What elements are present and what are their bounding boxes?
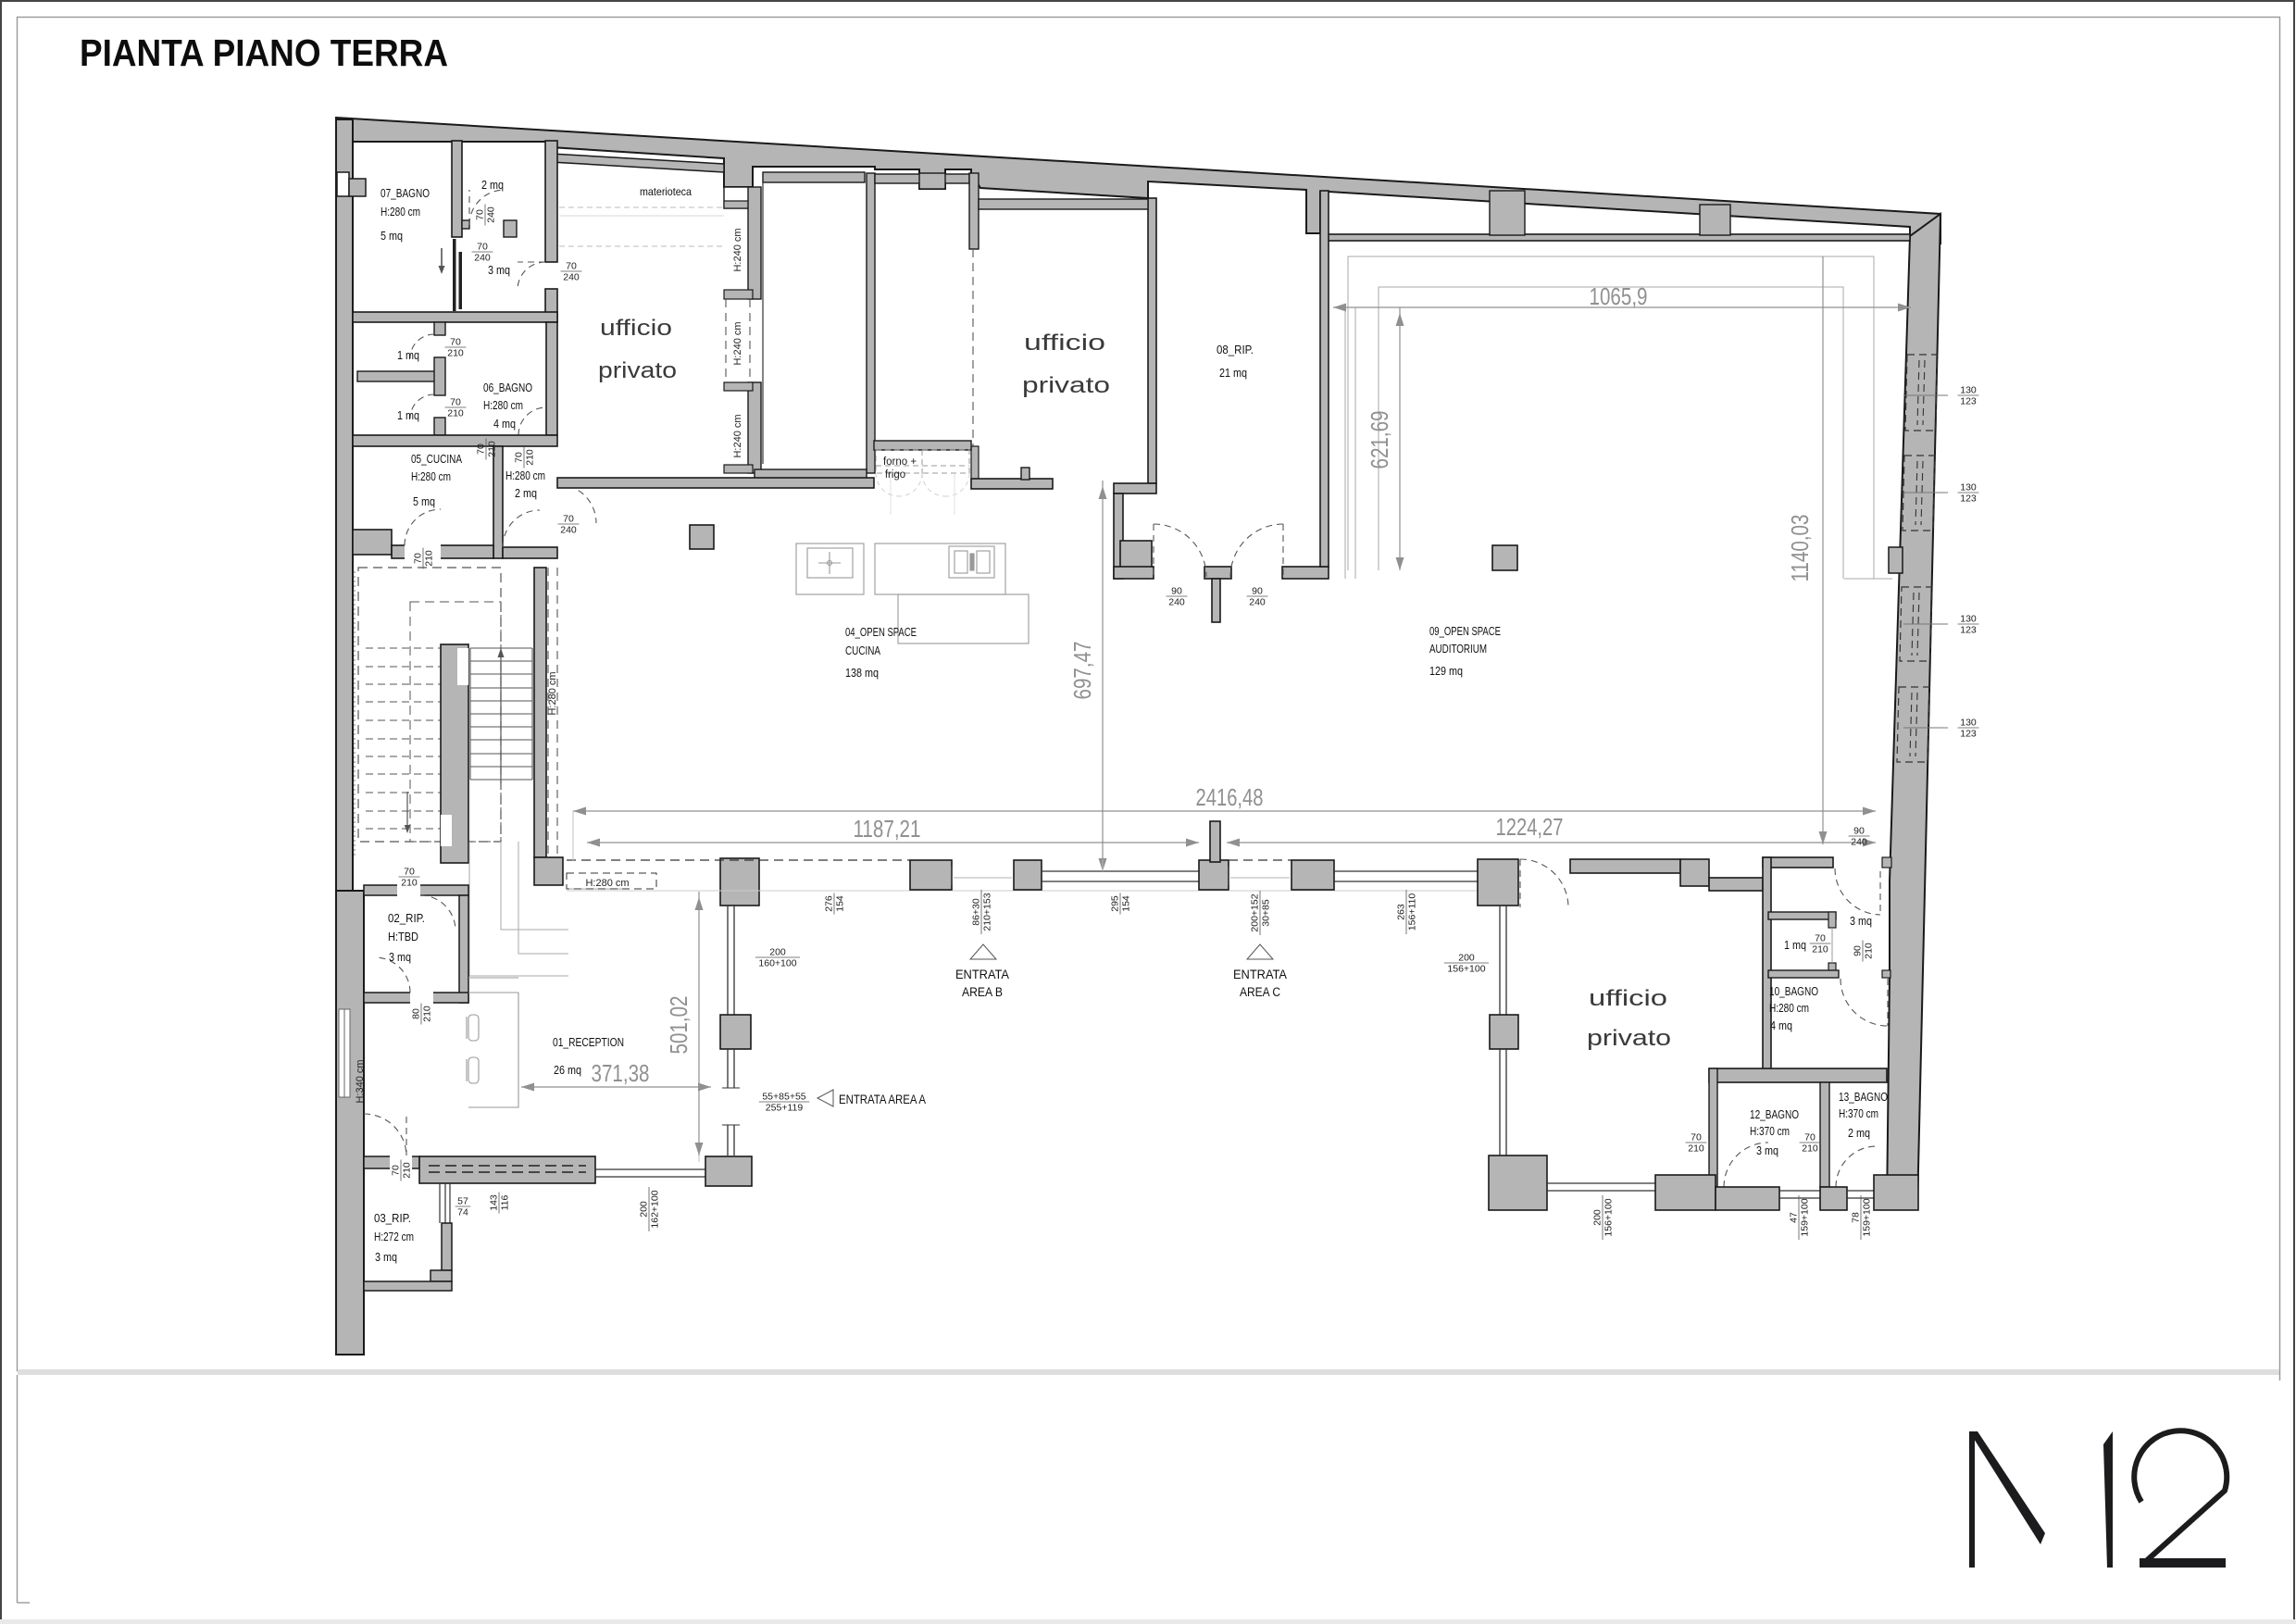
svg-text:240: 240 bbox=[474, 253, 491, 264]
svg-text:156+110: 156+110 bbox=[1407, 893, 1418, 931]
svg-text:255+119: 255+119 bbox=[766, 1103, 804, 1114]
svg-text:09_OPEN SPACE: 09_OPEN SPACE bbox=[1429, 624, 1501, 638]
svg-text:2 mq: 2 mq bbox=[515, 486, 537, 500]
svg-text:210: 210 bbox=[1864, 943, 1875, 959]
svg-text:240: 240 bbox=[563, 272, 580, 283]
svg-text:ufficio: ufficio bbox=[600, 316, 672, 341]
svg-text:70: 70 bbox=[476, 443, 487, 455]
svg-text:ufficio: ufficio bbox=[1589, 986, 1667, 1011]
svg-text:4 mq: 4 mq bbox=[1770, 1018, 1792, 1032]
svg-text:H:280 cm: H:280 cm bbox=[483, 398, 523, 412]
svg-text:697,47: 697,47 bbox=[1068, 642, 1096, 700]
svg-text:PIANTA PIANO TERRA: PIANTA PIANO TERRA bbox=[80, 31, 448, 74]
svg-text:materioteca: materioteca bbox=[640, 185, 692, 198]
svg-text:H:240 cm: H:240 cm bbox=[732, 228, 743, 271]
svg-text:240: 240 bbox=[1851, 837, 1867, 848]
svg-text:130: 130 bbox=[1960, 482, 1977, 493]
svg-text:123: 123 bbox=[1960, 729, 1977, 740]
svg-text:AREA B: AREA B bbox=[962, 985, 1003, 1000]
svg-text:70: 70 bbox=[450, 337, 461, 348]
svg-text:08_RIP.: 08_RIP. bbox=[1217, 343, 1254, 356]
svg-text:CUCINA: CUCINA bbox=[845, 643, 880, 657]
svg-text:159+100: 159+100 bbox=[1800, 1198, 1811, 1236]
svg-text:privato: privato bbox=[1022, 373, 1110, 398]
svg-text:240: 240 bbox=[560, 525, 577, 536]
svg-text:210: 210 bbox=[422, 1006, 433, 1022]
svg-text:30+85: 30+85 bbox=[1261, 899, 1272, 927]
svg-text:H:280 cm: H:280 cm bbox=[505, 468, 545, 482]
svg-text:210: 210 bbox=[1812, 944, 1828, 956]
svg-text:1 mq: 1 mq bbox=[397, 348, 419, 362]
svg-text:210: 210 bbox=[401, 878, 418, 889]
svg-text:156+100: 156+100 bbox=[1603, 1198, 1615, 1236]
svg-text:13_BAGNO: 13_BAGNO bbox=[1839, 1090, 1888, 1104]
svg-text:2 mq: 2 mq bbox=[1848, 1126, 1870, 1140]
svg-text:ENTRATA AREA A: ENTRATA AREA A bbox=[839, 1093, 926, 1107]
svg-text:H:280 cm: H:280 cm bbox=[1769, 1001, 1809, 1015]
svg-text:210: 210 bbox=[1688, 1143, 1704, 1155]
svg-text:04_OPEN SPACE: 04_OPEN SPACE bbox=[845, 625, 917, 639]
svg-text:78: 78 bbox=[1851, 1212, 1862, 1223]
svg-text:5 mq: 5 mq bbox=[381, 229, 403, 243]
svg-text:57: 57 bbox=[457, 1196, 468, 1207]
svg-text:240: 240 bbox=[486, 206, 497, 223]
svg-text:263: 263 bbox=[1396, 904, 1407, 920]
svg-text:12_BAGNO: 12_BAGNO bbox=[1750, 1107, 1799, 1121]
svg-text:160+100: 160+100 bbox=[758, 958, 796, 969]
svg-text:80: 80 bbox=[411, 1008, 422, 1019]
svg-text:210: 210 bbox=[1802, 1143, 1818, 1155]
svg-text:H:340 cm: H:340 cm bbox=[355, 1059, 366, 1103]
svg-text:ENTRATA: ENTRATA bbox=[1233, 968, 1287, 982]
svg-text:70: 70 bbox=[391, 1165, 402, 1176]
svg-text:200+152: 200+152 bbox=[1250, 893, 1261, 931]
svg-text:90: 90 bbox=[1853, 945, 1864, 956]
svg-text:129 mq: 129 mq bbox=[1429, 664, 1463, 678]
svg-text:AUDITORIUM: AUDITORIUM bbox=[1429, 642, 1487, 656]
svg-text:276: 276 bbox=[824, 895, 835, 912]
svg-text:200: 200 bbox=[1592, 1209, 1603, 1226]
svg-text:210: 210 bbox=[447, 408, 464, 419]
svg-text:47: 47 bbox=[1789, 1212, 1800, 1223]
svg-text:210+153: 210+153 bbox=[982, 893, 993, 931]
svg-text:138 mq: 138 mq bbox=[845, 666, 879, 680]
svg-text:210: 210 bbox=[487, 441, 498, 457]
svg-text:162+100: 162+100 bbox=[650, 1190, 661, 1228]
svg-text:70: 70 bbox=[413, 553, 424, 564]
svg-text:forno +: forno + bbox=[883, 456, 917, 468]
svg-text:123: 123 bbox=[1960, 396, 1977, 407]
svg-text:3 mq: 3 mq bbox=[375, 1250, 397, 1264]
svg-text:371,38: 371,38 bbox=[592, 1059, 650, 1087]
svg-text:210: 210 bbox=[447, 348, 464, 359]
svg-text:5 mq: 5 mq bbox=[413, 494, 435, 508]
svg-text:70: 70 bbox=[450, 397, 461, 408]
svg-text:1 mq: 1 mq bbox=[1784, 938, 1806, 952]
svg-text:H:280 cm: H:280 cm bbox=[411, 469, 451, 483]
svg-text:H:280 cm: H:280 cm bbox=[381, 205, 420, 219]
svg-text:70: 70 bbox=[1804, 1132, 1816, 1143]
svg-text:156+100: 156+100 bbox=[1447, 964, 1485, 975]
svg-text:55+85+55: 55+85+55 bbox=[762, 1092, 805, 1103]
svg-text:frigo: frigo bbox=[885, 469, 905, 481]
svg-text:H:240 cm: H:240 cm bbox=[732, 414, 743, 457]
svg-text:123: 123 bbox=[1960, 493, 1977, 505]
svg-text:ufficio: ufficio bbox=[1024, 331, 1105, 356]
svg-text:privato: privato bbox=[1587, 1026, 1671, 1051]
svg-text:116: 116 bbox=[500, 1194, 511, 1210]
svg-text:06_BAGNO: 06_BAGNO bbox=[483, 381, 532, 394]
svg-text:ENTRATA: ENTRATA bbox=[955, 968, 1009, 982]
svg-text:H:280 cm: H:280 cm bbox=[547, 671, 558, 715]
svg-text:70: 70 bbox=[1815, 933, 1826, 944]
svg-text:1065,9: 1065,9 bbox=[1590, 282, 1648, 310]
svg-text:2416,48: 2416,48 bbox=[1196, 783, 1264, 811]
svg-text:210: 210 bbox=[525, 449, 536, 466]
svg-text:AREA C: AREA C bbox=[1240, 985, 1280, 1000]
svg-text:21 mq: 21 mq bbox=[1219, 366, 1247, 380]
svg-text:295: 295 bbox=[1110, 895, 1121, 912]
svg-text:H:280 cm: H:280 cm bbox=[585, 878, 629, 889]
svg-text:3 mq: 3 mq bbox=[389, 950, 411, 964]
svg-text:154: 154 bbox=[1121, 895, 1132, 912]
svg-text:123: 123 bbox=[1960, 625, 1977, 636]
svg-text:H:240 cm: H:240 cm bbox=[732, 321, 743, 365]
svg-text:1 mq: 1 mq bbox=[397, 408, 419, 422]
svg-text:70: 70 bbox=[475, 209, 486, 220]
svg-text:70: 70 bbox=[404, 867, 415, 878]
svg-text:70: 70 bbox=[566, 261, 577, 272]
svg-text:1224,27: 1224,27 bbox=[1496, 813, 1564, 841]
svg-text:07_BAGNO: 07_BAGNO bbox=[381, 186, 430, 200]
svg-text:240: 240 bbox=[1168, 597, 1185, 608]
svg-text:4 mq: 4 mq bbox=[493, 417, 516, 431]
svg-text:130: 130 bbox=[1960, 385, 1977, 396]
svg-text:1140,03: 1140,03 bbox=[1786, 515, 1814, 582]
svg-text:05_CUCINA: 05_CUCINA bbox=[411, 452, 462, 466]
svg-text:H:370 cm: H:370 cm bbox=[1750, 1124, 1790, 1138]
svg-text:H:TBD: H:TBD bbox=[388, 930, 418, 943]
svg-text:70: 70 bbox=[514, 452, 525, 463]
svg-text:H:370 cm: H:370 cm bbox=[1839, 1106, 1878, 1120]
svg-text:200: 200 bbox=[1458, 953, 1475, 964]
svg-text:02_RIP.: 02_RIP. bbox=[388, 911, 425, 925]
svg-text:01_RECEPTION: 01_RECEPTION bbox=[553, 1035, 624, 1049]
svg-text:159+100: 159+100 bbox=[1862, 1198, 1873, 1236]
svg-text:3 mq: 3 mq bbox=[1850, 914, 1872, 928]
svg-text:90: 90 bbox=[1171, 586, 1182, 597]
svg-text:10_BAGNO: 10_BAGNO bbox=[1769, 984, 1818, 998]
svg-text:70: 70 bbox=[477, 242, 488, 253]
svg-text:501,02: 501,02 bbox=[665, 996, 693, 1055]
svg-text:90: 90 bbox=[1853, 826, 1865, 837]
svg-text:3 mq: 3 mq bbox=[1756, 1143, 1778, 1157]
svg-text:03_RIP.: 03_RIP. bbox=[374, 1211, 411, 1225]
svg-text:90: 90 bbox=[1252, 586, 1263, 597]
svg-text:70: 70 bbox=[1691, 1132, 1702, 1143]
svg-text:70: 70 bbox=[563, 514, 574, 525]
svg-text:1187,21: 1187,21 bbox=[854, 815, 921, 843]
svg-text:3 mq: 3 mq bbox=[488, 263, 510, 277]
svg-text:200: 200 bbox=[639, 1201, 650, 1218]
svg-text:privato: privato bbox=[598, 358, 677, 383]
svg-text:240: 240 bbox=[1249, 597, 1266, 608]
svg-text:210: 210 bbox=[424, 550, 435, 567]
svg-text:H:272 cm: H:272 cm bbox=[374, 1230, 414, 1243]
svg-text:621,69: 621,69 bbox=[1366, 411, 1393, 469]
svg-text:143: 143 bbox=[489, 1194, 500, 1211]
svg-text:2 mq: 2 mq bbox=[481, 178, 504, 192]
svg-text:26 mq: 26 mq bbox=[554, 1063, 581, 1077]
svg-text:130: 130 bbox=[1960, 614, 1977, 625]
svg-text:130: 130 bbox=[1960, 718, 1977, 729]
svg-text:154: 154 bbox=[835, 895, 846, 912]
svg-text:74: 74 bbox=[457, 1207, 468, 1218]
svg-text:210: 210 bbox=[402, 1162, 413, 1179]
svg-text:86+30: 86+30 bbox=[971, 898, 982, 926]
svg-text:200: 200 bbox=[769, 947, 786, 958]
